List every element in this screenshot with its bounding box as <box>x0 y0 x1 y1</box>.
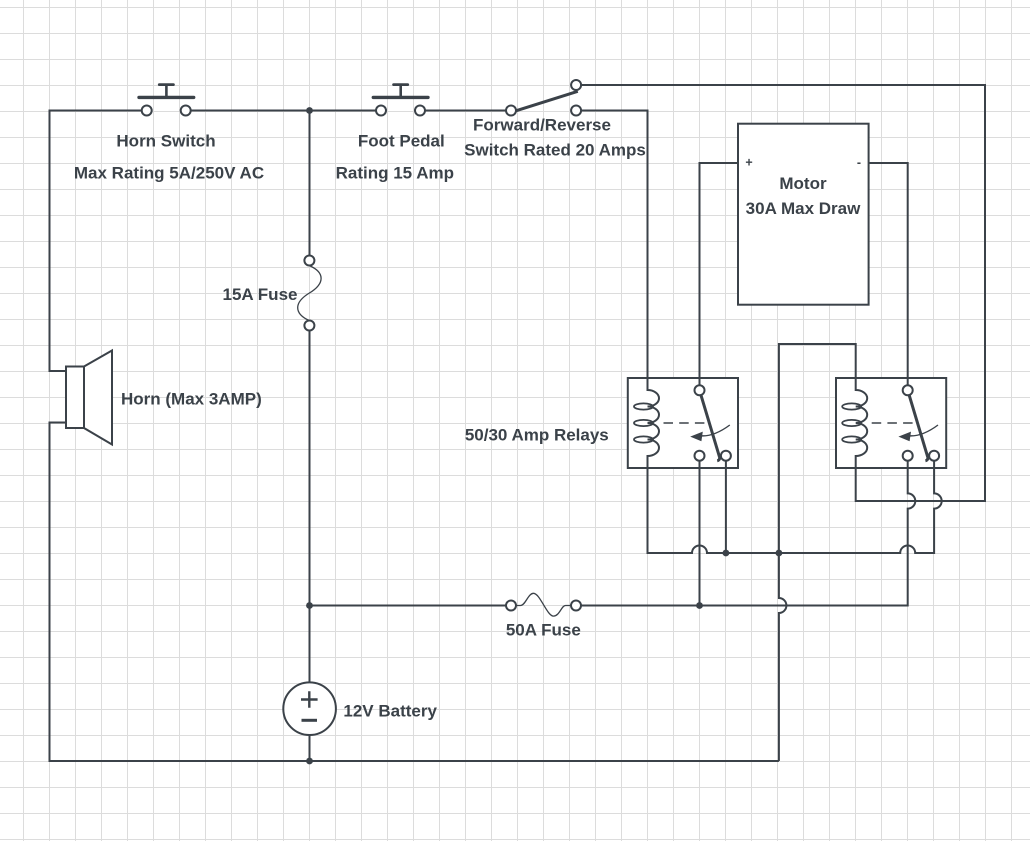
svg-text:Rating 15 Amp: Rating 15 Amp <box>336 164 454 183</box>
svg-text:12V Battery: 12V Battery <box>343 702 437 721</box>
svg-text:Horn (Max 3AMP): Horn (Max 3AMP) <box>121 390 262 409</box>
svg-text:Forward/Reverse: Forward/Reverse <box>473 115 611 134</box>
svg-text:50A Fuse: 50A Fuse <box>506 621 581 640</box>
svg-text:Switch Rated 20 Amps: Switch Rated 20 Amps <box>464 140 646 159</box>
svg-text:15A Fuse: 15A Fuse <box>223 285 298 304</box>
svg-text:+: + <box>745 156 752 170</box>
svg-text:50/30 Amp Relays: 50/30 Amp Relays <box>465 426 609 445</box>
svg-text:Motor: Motor <box>779 174 827 193</box>
svg-text:Max Rating 5A/250V AC: Max Rating 5A/250V AC <box>74 164 264 183</box>
svg-text:-: - <box>857 156 861 170</box>
svg-text:Foot Pedal: Foot Pedal <box>358 132 445 151</box>
svg-text:30A Max Draw: 30A Max Draw <box>746 199 861 218</box>
svg-text:Horn Switch: Horn Switch <box>116 132 215 151</box>
